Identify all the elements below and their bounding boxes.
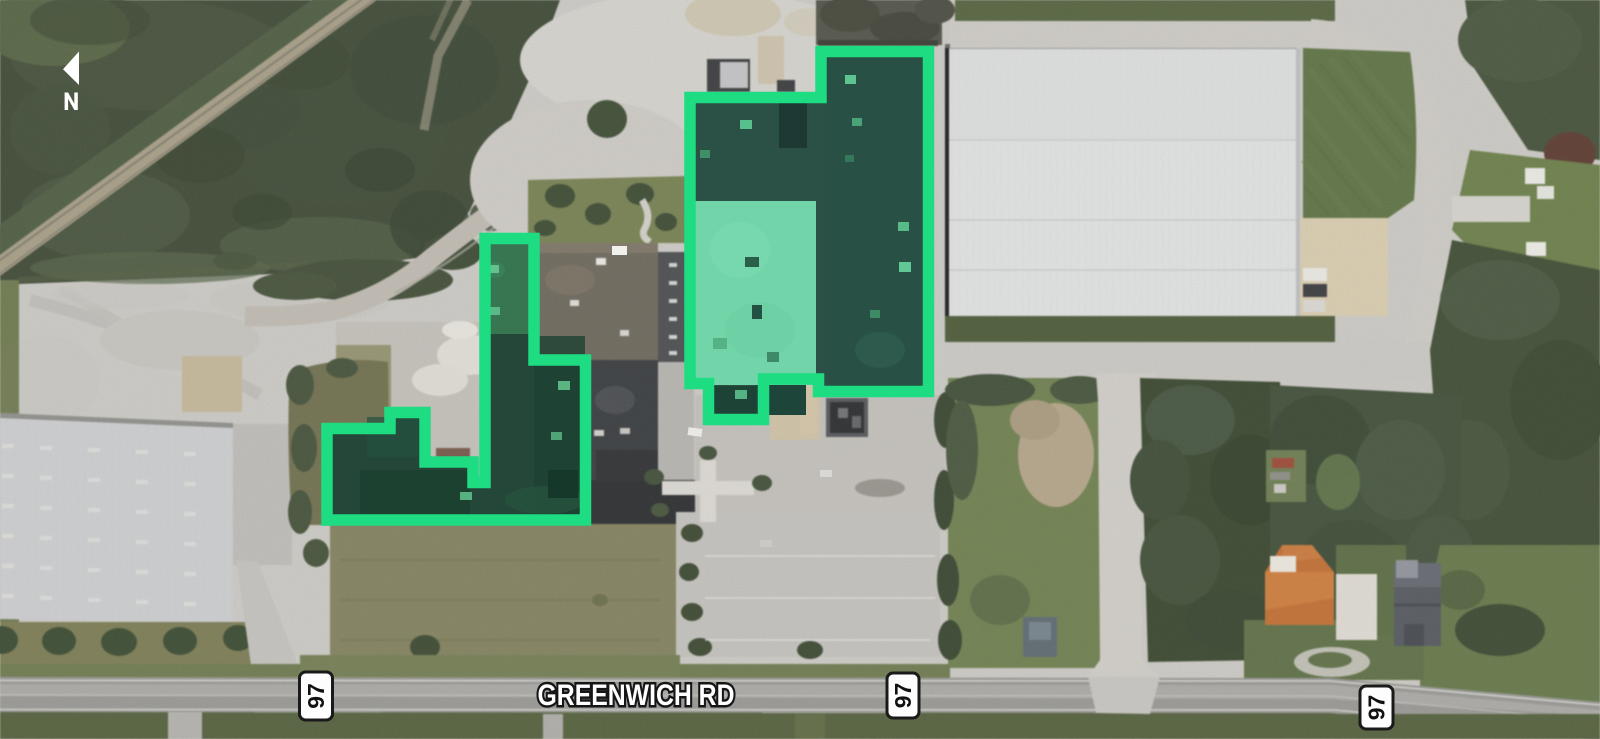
svg-text:97: 97 [890, 683, 916, 709]
svg-text:97: 97 [1364, 695, 1390, 721]
svg-text:GREENWICH RD: GREENWICH RD [538, 679, 735, 712]
svg-text:97: 97 [303, 683, 329, 709]
